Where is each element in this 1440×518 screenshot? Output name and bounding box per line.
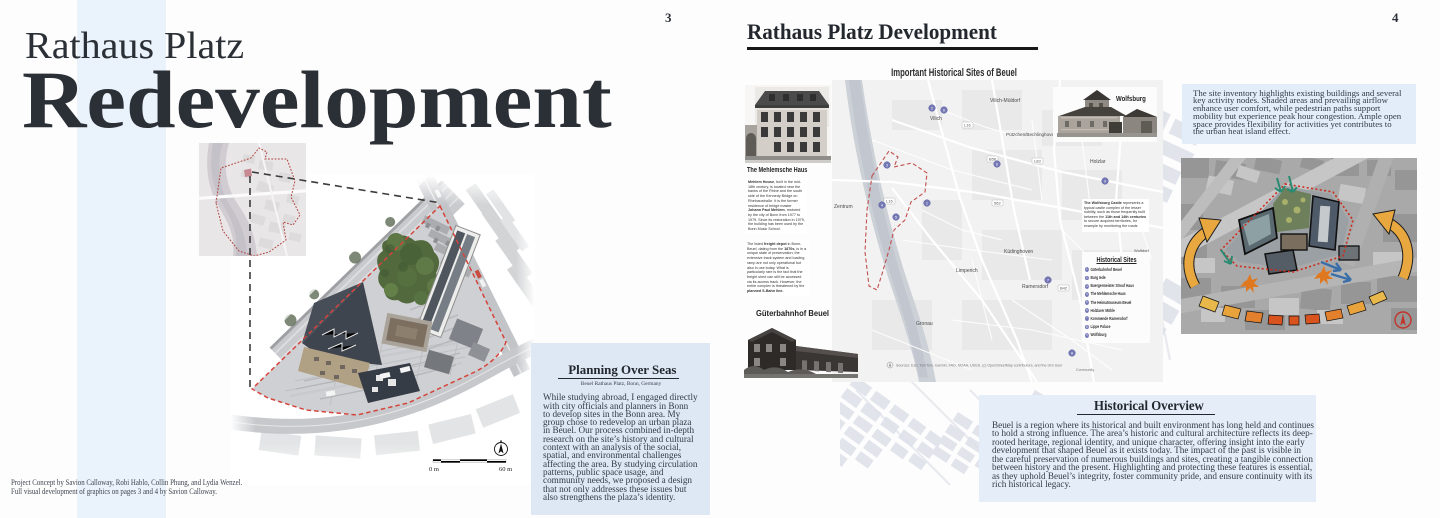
svg-text:Zentrum: Zentrum [834, 204, 853, 210]
svg-text:Vilich-Müldorf: Vilich-Müldorf [990, 98, 1021, 104]
svg-text:Ramersdorf: Ramersdorf [1022, 284, 1049, 290]
svg-text:Holzlar: Holzlar [1090, 159, 1106, 165]
svg-text:60 m: 60 m [499, 466, 512, 473]
svg-text:Community: Community [1076, 368, 1094, 372]
svg-text:7: 7 [1047, 278, 1049, 282]
svg-text:5: 5 [895, 215, 897, 219]
svg-text:2: 2 [931, 106, 933, 110]
svg-text:Pützchen/Bechlinghoven: Pützchen/Bechlinghoven [1006, 132, 1057, 137]
svg-text:Gronau: Gronau [916, 321, 933, 327]
svg-text:6: 6 [996, 162, 998, 166]
svg-text:562: 562 [994, 201, 1001, 206]
svg-text:4: 4 [881, 203, 883, 207]
svg-text:6: 6 [943, 108, 945, 112]
svg-text:1: 1 [926, 201, 928, 205]
svg-text:0 m: 0 m [429, 466, 439, 473]
svg-text:L83: L83 [1034, 159, 1041, 164]
svg-text:Sources: Esri, TomTom, Garmin,: Sources: Esri, TomTom, Garmin, FAO, NOAA… [896, 364, 1063, 368]
svg-text:B42: B42 [1060, 286, 1068, 291]
svg-text:L16: L16 [886, 199, 893, 204]
svg-text:Vilich: Vilich [930, 116, 942, 122]
svg-text:Küdinghoven: Küdinghoven [1004, 249, 1033, 255]
svg-text:9: 9 [1104, 179, 1106, 183]
svg-text:3: 3 [886, 163, 888, 167]
svg-text:Limperich: Limperich [956, 268, 978, 274]
svg-text:L16: L16 [964, 123, 971, 128]
svg-text:8: 8 [1071, 351, 1073, 355]
